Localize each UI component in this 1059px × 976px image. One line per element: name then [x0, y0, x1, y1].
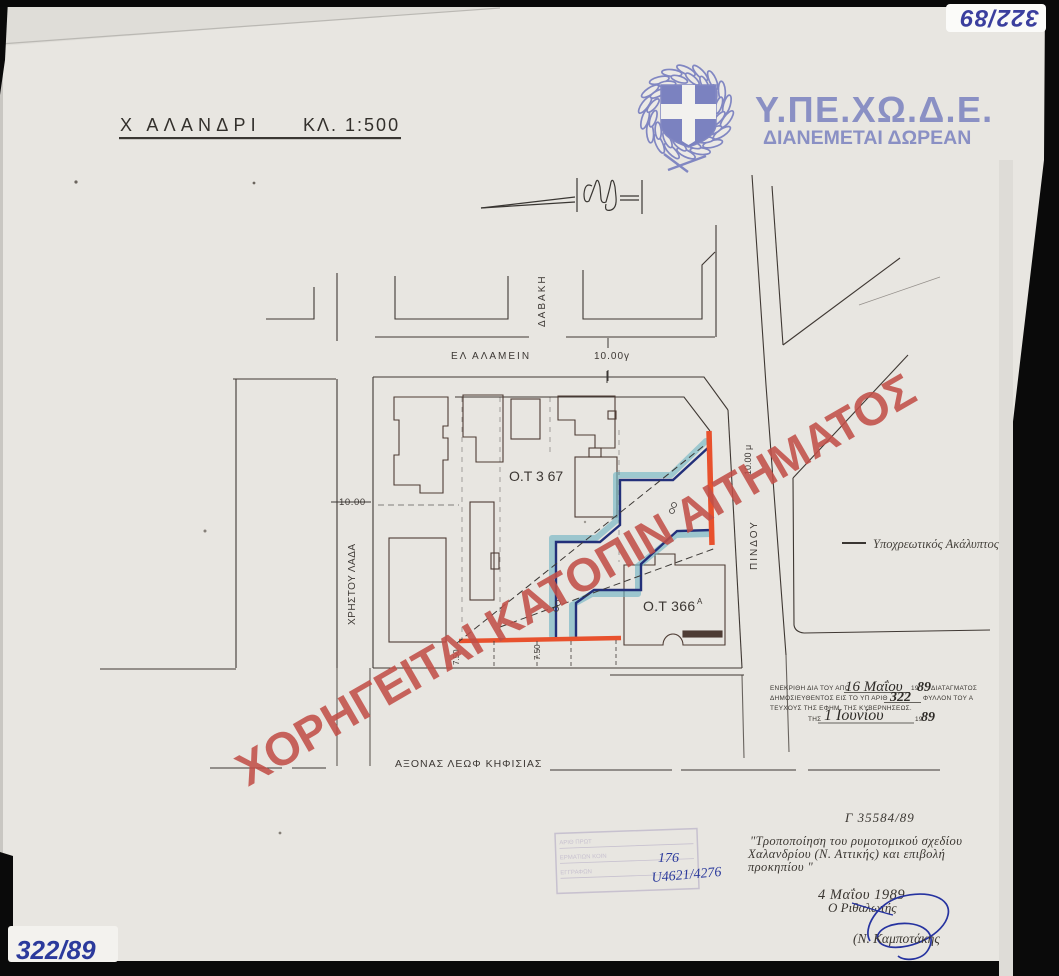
svg-text:ΑΞΟΝΑΣ ΛΕΩΦ ΚΗΦΙΣΙΑΣ: ΑΞΟΝΑΣ ΛΕΩΦ ΚΗΦΙΣΙΑΣ — [395, 758, 542, 770]
svg-text:10.00: 10.00 — [339, 497, 366, 508]
svg-text:Χ ΑΛΑΝΔΡΙ: Χ ΑΛΑΝΔΡΙ — [120, 115, 261, 135]
svg-text:89: 89 — [921, 710, 935, 725]
svg-text:(Ν. Καμποτάκης: (Ν. Καμποτάκης — [853, 931, 940, 946]
svg-text:322: 322 — [889, 690, 911, 705]
svg-text:Υποχρεωτικός Ακάλυπτος: Υποχρεωτικός Ακάλυπτος — [873, 537, 1000, 551]
svg-text:O.T 3 67: O.T 3 67 — [509, 468, 563, 484]
svg-text:"Τροποποίηση του ρυμοτομικού σ: "Τροποποίηση του ρυμοτομικού σχεδίου — [750, 834, 962, 848]
svg-text:89: 89 — [917, 680, 931, 695]
svg-text:προκηπίου ": προκηπίου " — [748, 860, 814, 874]
svg-text:ΑΡΙΘ ΠΡΩΤ: ΑΡΙΘ ΠΡΩΤ — [559, 839, 592, 846]
svg-text:ΧΡΗΣΤΟΥ ΛΑΔΑ: ΧΡΗΣΤΟΥ ΛΑΔΑ — [347, 543, 358, 625]
svg-text:ΤΗΣ: ΤΗΣ — [808, 716, 821, 723]
svg-text:7.50: 7.50 — [533, 644, 542, 660]
svg-text:ΔΙΑΤΑΓΜΑΤΟΣ: ΔΙΑΤΑΓΜΑΤΟΣ — [931, 685, 977, 692]
svg-text:176: 176 — [658, 851, 679, 866]
svg-text:Υ.ΠΕ.ΧΩ.Δ.Ε.: Υ.ΠΕ.ΧΩ.Δ.Ε. — [755, 89, 993, 130]
svg-text:ΕΛ ΑΛΑΜΕΙΝ: ΕΛ ΑΛΑΜΕΙΝ — [451, 351, 531, 362]
svg-text:ΔΑΒΑΚΗ: ΔΑΒΑΚΗ — [537, 274, 548, 327]
svg-text:ΦΥΛΛΟΝ ΤΟΥ Α: ΦΥΛΛΟΝ ΤΟΥ Α — [923, 695, 974, 702]
svg-text:ΔΗΜΟΣΙΕΥΘΕΝΤΟΣ ΕΙΣ ΤΟ ΥΠ Α: ΔΗΜΟΣΙΕΥΘΕΝΤΟΣ ΕΙΣ ΤΟ ΥΠ ΑΡΙΘ — [770, 695, 888, 702]
svg-text:Γ 35584/89: Γ 35584/89 — [844, 810, 915, 825]
svg-text:ΠΙΝΔΟΥ: ΠΙΝΔΟΥ — [749, 520, 760, 570]
svg-text:ΔΙΑΝΕΜΕΤΑΙ ΔΩΡΕΑΝ: ΔΙΑΝΕΜΕΤΑΙ ΔΩΡΕΑΝ — [763, 127, 971, 149]
svg-text:Χαλανδρίου (Ν. Αττικής) και επ: Χαλανδρίου (Ν. Αττικής) και επιβολή — [747, 847, 945, 861]
svg-text:322/89: 322/89 — [960, 4, 1039, 31]
svg-text:ΕΓΓΡΑΦΩΝ: ΕΓΓΡΑΦΩΝ — [560, 869, 592, 876]
svg-text:10.00γ: 10.00γ — [594, 351, 630, 362]
svg-text:ΚΛ. 1:500: ΚΛ. 1:500 — [303, 115, 400, 135]
svg-text:Α: Α — [697, 597, 703, 606]
svg-text:322/89: 322/89 — [16, 935, 96, 965]
svg-text:ΕΝΕΚΡΙΘΗ ΔΙΑ ΤΟΥ ΑΠΟ: ΕΝΕΚΡΙΘΗ ΔΙΑ ΤΟΥ ΑΠΟ — [770, 685, 850, 692]
svg-text:1 Ιουνίου: 1 Ιουνίου — [824, 707, 884, 724]
svg-text:O.T 366: O.T 366 — [643, 598, 695, 614]
